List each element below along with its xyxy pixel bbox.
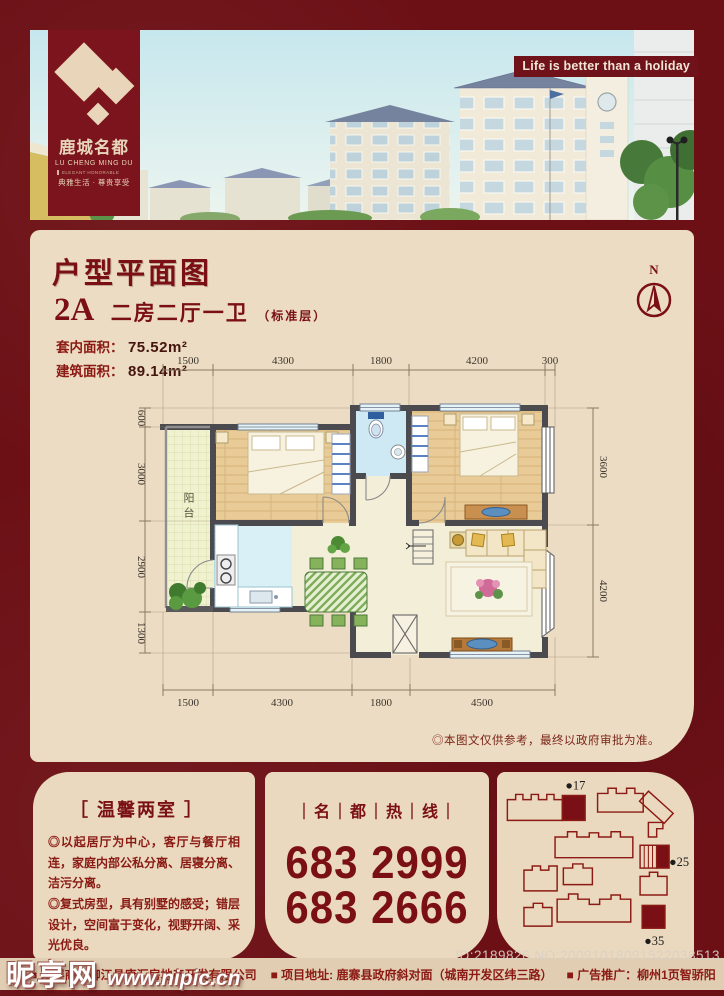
svg-text:1800: 1800 (370, 355, 393, 367)
siteplan-marker-25: ●25 (669, 855, 689, 869)
hotline-phone-2: 683 2666 (265, 884, 489, 933)
svg-text:1500: 1500 (177, 355, 200, 367)
logo-name-cn: 鹿城名都 (59, 134, 129, 158)
svg-text:4300: 4300 (271, 697, 294, 709)
siteplan-buildings (507, 788, 673, 928)
svg-text:4500: 4500 (471, 697, 494, 709)
balcony-label: 阳台 (180, 492, 196, 522)
watermark-url: www.nipic.cn (107, 967, 240, 991)
svg-text:1800: 1800 (370, 697, 393, 709)
hotline-phone-1: 683 2999 (265, 838, 489, 887)
svg-text:4300: 4300 (272, 355, 295, 367)
svg-text:3000: 3000 (135, 463, 147, 486)
unit-info: 2A 二房二厅一卫 （标准层） (54, 292, 327, 329)
living-rug (446, 562, 532, 616)
unit-type: 二房二厅一卫 (111, 302, 249, 325)
section-title: 户型平面图 (52, 250, 212, 292)
floorplan-panel: 户型平面图 2A 二房二厅一卫 （标准层） 套内面积： 75.52m² 建筑面积… (30, 230, 694, 762)
footer-address: ■ 项目地址: 鹿寨县政府斜对面（城南开发区纬三路） (271, 966, 553, 983)
svg-text:600: 600 (135, 410, 147, 427)
svg-text:4200: 4200 (597, 580, 609, 603)
flyer-page: Life is better than a holiday 鹿城名都 LU CH… (0, 0, 724, 996)
unit-code: 2A (54, 292, 94, 328)
highlight-bullet: ◎以起居厅为中心，客厅与餐厅相连，家庭内部公私分离、居寝分离、洁污分离。 (48, 832, 240, 894)
compass-n-label: N (649, 262, 659, 277)
highlights-box: ［ 温馨两室 ］ ◎以起居厅为中心，客厅与餐厅相连，家庭内部公私分离、居寝分离、… (33, 772, 255, 960)
footer-agency: ■ 广告推广：柳州1页智骄阳 (567, 966, 716, 983)
stock-id-text: ID:2189826 NO:20091018091522038513 (455, 948, 720, 963)
floorplan-drawing: 1500 4300 1800 4200 300 1500 4300 1800 4… (110, 340, 680, 720)
highlight-bullet: ◎复式房型，具有别墅的感受；错层设计，空间富于变化，视野开阔、采光优良。 (48, 894, 240, 956)
dining-table (305, 558, 367, 626)
unit-note: （标准层） (257, 309, 327, 323)
compass: N (632, 260, 676, 327)
tv-cabinet (452, 638, 512, 651)
svg-text:1500: 1500 (177, 697, 200, 709)
logo-subtitle: ELEGANT HONORABLE (57, 170, 119, 175)
svg-text:1300: 1300 (135, 622, 147, 645)
disclaimer-note: ◎本图文仅供参考，最终以政府审批为准。 (432, 732, 660, 748)
hotline-label: ｜名｜都｜热｜线｜ (265, 798, 489, 822)
brand-logo: 鹿城名都 LU CHENG MING DU ELEGANT HONORABLE … (48, 30, 140, 216)
svg-text:2900: 2900 (135, 556, 147, 579)
svg-text:3600: 3600 (597, 456, 609, 479)
watermark-site-name: 昵享网 (6, 952, 99, 994)
slogan-banner: Life is better than a holiday (514, 56, 698, 77)
siteplan-box: ●17 ●25 ●35 (497, 772, 694, 960)
logo-tagline: 典雅生活 · 尊贵享受 (58, 177, 130, 188)
svg-text:300: 300 (542, 355, 559, 367)
logo-diamond-icon (48, 36, 140, 132)
highlights-title: ［ 温馨两室 ］ (70, 796, 240, 822)
siteplan-marker-35: ●35 (644, 934, 664, 948)
hotline-box: ｜名｜都｜热｜线｜ 683 2999 683 2666 (265, 772, 489, 960)
siteplan-drawing: ●17 ●25 ●35 (497, 772, 694, 960)
watermark: 昵享网 www.nipic.cn (6, 952, 240, 994)
logo-name-en: LU CHENG MING DU (55, 160, 133, 167)
siteplan-marker-17: ●17 (565, 778, 585, 792)
svg-text:4200: 4200 (466, 355, 489, 367)
